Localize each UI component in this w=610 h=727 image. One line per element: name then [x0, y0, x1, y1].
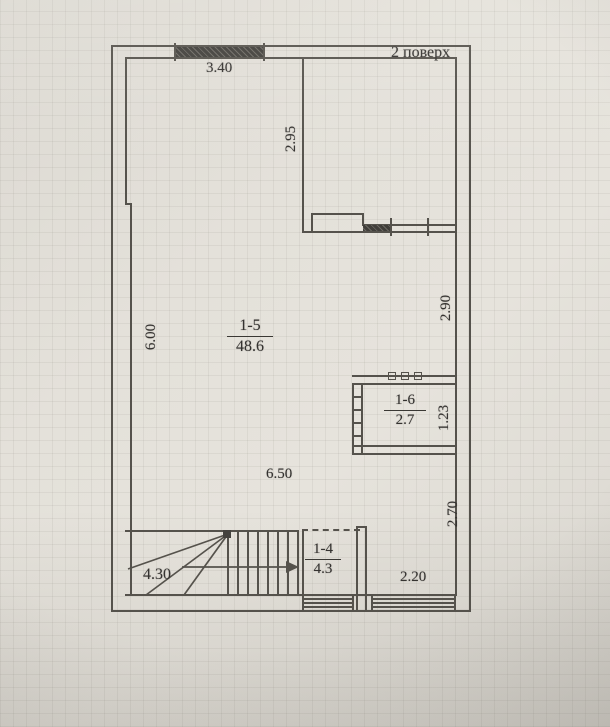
room-1-6-area: 2.7 [384, 411, 426, 429]
storage-wall-bottom-inner [352, 445, 456, 447]
dim-top-window: 3.40 [206, 60, 232, 77]
room-1-4-number: 1-4 [305, 541, 341, 560]
dim-stair-run: 4.30 [143, 566, 171, 584]
storage-block-1 [388, 372, 396, 380]
balcony-wall-bottom-face [302, 231, 456, 233]
room-label-1-6: 1-6 2.7 [384, 392, 426, 429]
dim-left-wall: 6.00 [143, 315, 159, 359]
storage-block-3 [414, 372, 422, 380]
room-1-6-number: 1-6 [384, 392, 426, 411]
window-bottom-right-tick-a [371, 594, 373, 611]
balcony-ledge-left [311, 213, 313, 233]
floor-plan-drawing: 2 поверх 3.40 2.95 6.00 2.90 1.23 6.50 2… [0, 0, 610, 727]
dim-main-room-width: 6.50 [266, 466, 292, 483]
room-1-5-area: 48.6 [227, 337, 273, 356]
landing-wall-left-face [356, 526, 358, 611]
balcony-wall-left [302, 57, 304, 233]
stair-winder-and-direction-arrow [110, 525, 310, 600]
window-top [175, 47, 265, 57]
window-top-tick-right [263, 43, 265, 61]
room-label-1-4: 1-4 4.3 [305, 541, 341, 578]
room-label-1-5: 1-5 48.6 [227, 317, 273, 356]
floor-title: 2 поверх [391, 44, 450, 62]
stair-opening-dashed-line [302, 529, 360, 531]
window-bottom-right-line-2 [372, 602, 456, 604]
dim-bottom-right: 2.20 [400, 569, 426, 586]
storage-wall-bottom-outer [352, 453, 456, 455]
dim-right-lower: 2.70 [445, 492, 461, 536]
dim-balcony-depth: 2.95 [283, 117, 299, 161]
dim-right-upper: 2.90 [438, 286, 454, 330]
balcony-window-tick-left [390, 218, 392, 236]
room-1-5-number: 1-5 [227, 317, 273, 337]
photographed-floor-plan-page: 2 поверх 3.40 2.95 6.00 2.90 1.23 6.50 2… [0, 0, 610, 727]
window-bottom-left-tick-b [352, 594, 354, 611]
room-1-4-area: 4.3 [305, 560, 341, 578]
storage-door-tick-1 [352, 396, 363, 398]
wall-outer-bottom [111, 610, 471, 612]
window-bottom-left-tick-a [302, 594, 304, 611]
storage-door-tick-4 [352, 435, 363, 437]
window-bottom-right-tick-b [454, 594, 456, 611]
balcony-ledge-top [311, 213, 364, 215]
wall-inner-left-upper [125, 57, 127, 205]
window-bottom-right-line-3 [372, 606, 456, 608]
landing-wall-right-face [365, 526, 367, 611]
window-bottom-left-line-3 [303, 606, 353, 608]
wall-outer-right [469, 45, 471, 612]
window-bottom-left-line-2 [303, 602, 353, 604]
storage-wall-top-inner [352, 383, 456, 385]
balcony-window-tick-right [427, 218, 429, 236]
storage-door-tick-3 [352, 422, 363, 424]
window-bottom-left-line-1 [303, 598, 353, 600]
dim-storage-height: 1.23 [436, 396, 452, 440]
window-bottom-right-line-1 [372, 598, 456, 600]
storage-door-tick-2 [352, 409, 363, 411]
window-top-tick-left [174, 43, 176, 61]
storage-block-2 [401, 372, 409, 380]
